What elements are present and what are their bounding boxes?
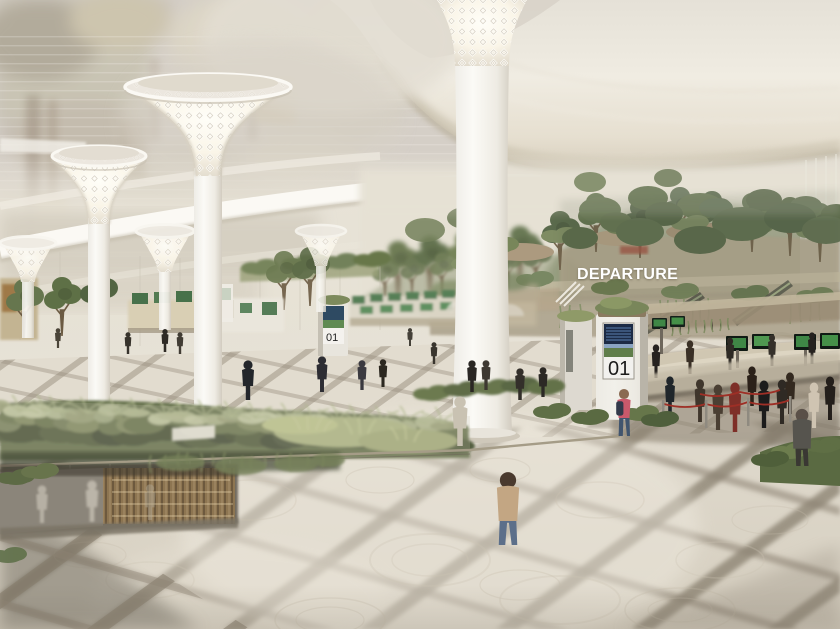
svg-text:DEPARTURE: DEPARTURE (577, 266, 678, 283)
svg-text:01: 01 (326, 332, 338, 344)
svg-text:01: 01 (608, 358, 630, 380)
